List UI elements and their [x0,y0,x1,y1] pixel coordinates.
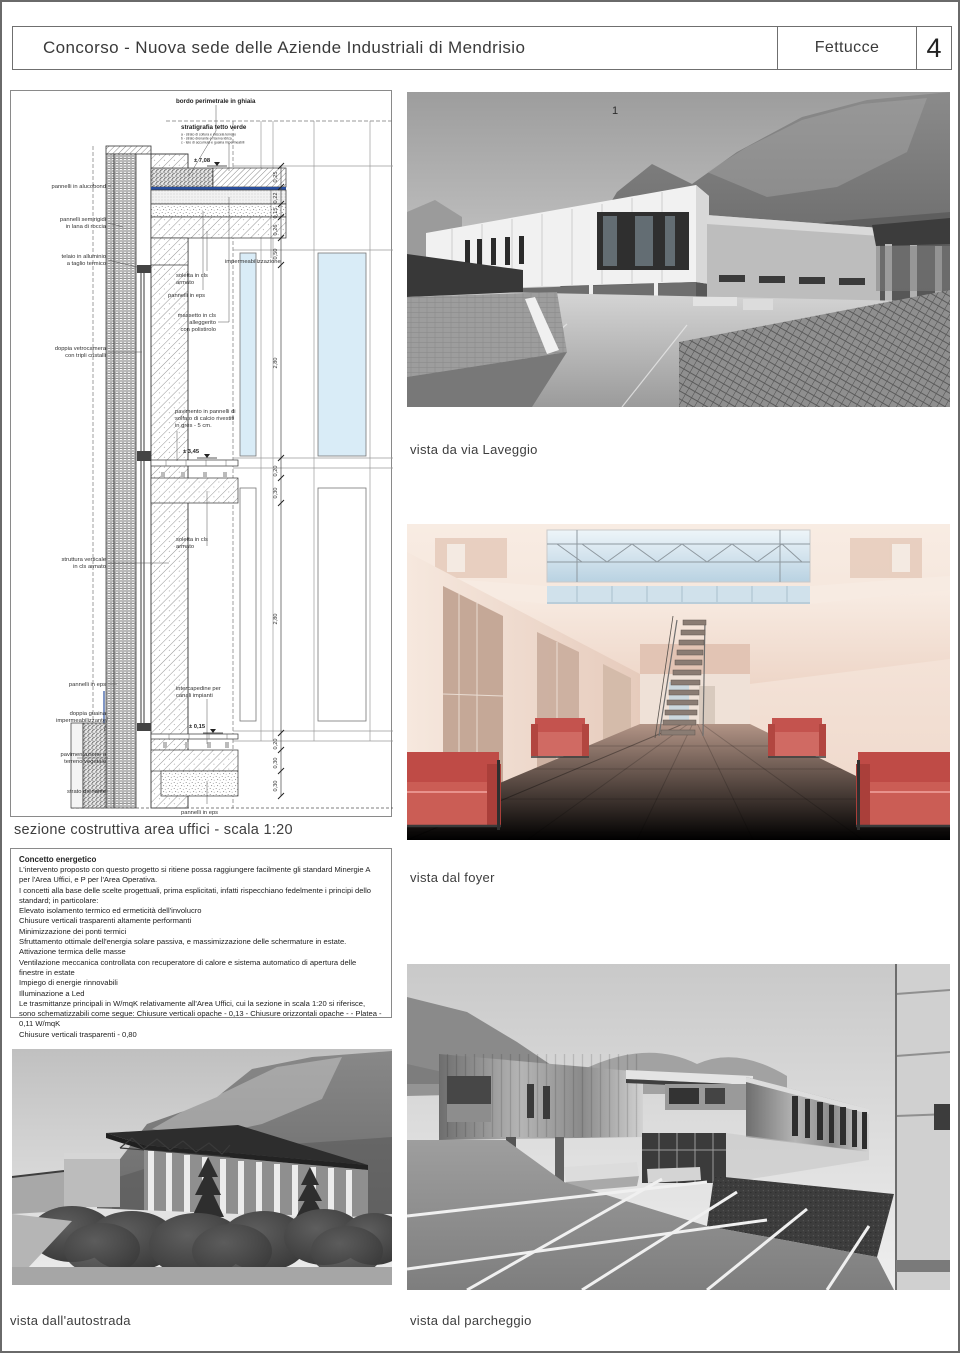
section-drawing-panel: 0,25 0,22 0,15 0,26 0,50 2,80 0,20 0,30 … [10,90,392,817]
label-strat-c: c - telo di accumulo e guaina impermeabi… [181,141,245,145]
header-tag-box: Fettucce [777,26,917,70]
dim-280-upper: 2,80 [273,358,279,369]
label-vetro-1: doppia vetrocamera [55,346,107,352]
label-alucobond: pannelli in alucobond [52,184,106,190]
sofa-front-right [856,752,950,830]
label-massetto-3: con polistirolo [181,327,216,333]
dim-mid-030: 0,30 [273,488,279,499]
sheet-number: 4 [926,33,941,64]
energy-line: Impiego di energie rinnovabili [19,978,383,988]
energy-line: I concetti alla base delle scelte proget… [19,886,383,907]
view-marker-1: 1 [612,105,618,117]
label-massetto-1: massetto in cls [178,313,216,319]
label-semirigidi-2: in lana di roccia [66,224,107,230]
skylight [547,530,810,582]
render-laveggio: 1 [407,92,950,407]
energy-concept-panel: Concetto energetico L'intervento propost… [10,848,392,1018]
caption-autostrada: vista dall'autostrada [10,1313,131,1328]
header-title-box: Concorso - Nuova sede delle Aziende Indu… [12,26,778,70]
drawing-caption: sezione costruttiva area uffici - scala … [14,822,293,838]
dim-280-lower: 2,80 [273,614,279,625]
page-title: Concorso - Nuova sede delle Aziende Indu… [43,38,525,58]
label-pavimento-3: in grès - 5 cm. [175,423,212,429]
label-soletta-b-2: armato [176,544,194,550]
label-soletta-1: soletta in cls [176,273,208,279]
label-struttura-1: struttura verticale [62,557,106,563]
label-eps-left: pannelli in eps [69,682,106,688]
label-guaina-2: impermeabilizzante [56,718,106,724]
competition-board: Concorso - Nuova sede delle Aziende Indu… [0,0,960,1353]
render-foyer [407,524,950,840]
level-markers: ± 7,08 ± 3,45 ± 0,15 [183,158,227,733]
label-eps-roof: pannelli in eps [168,293,205,299]
exterior-ground [71,723,106,808]
caption-foyer: vista dal foyer [410,870,495,885]
energy-line: Chiusure verticali trasparenti altamente… [19,916,383,926]
header-sheet-box: 4 [916,26,952,70]
label-telaio-2: a taglio termico [67,261,106,267]
label-imperm: impermeabilizzazione [225,259,281,265]
foreground-wall [896,964,950,1290]
label-semirigidi-1: pannelli semirigidi [60,217,106,223]
energy-line: Chiusure verticali trasparenti - 0,80 [19,1030,383,1040]
sofa-mid-left [531,718,589,757]
label-drenante: strato drenante [67,789,106,795]
dim-025: 0,25 [273,172,279,183]
render-autostrada [12,1049,392,1285]
energy-line: Illuminazione a Led [19,989,383,999]
label-soletta-2: armato [176,280,194,286]
sofa-mid-right [768,718,826,757]
elevation-windows [240,253,366,721]
level-ground: ± 0,15 [189,724,206,730]
header-bar: Concorso - Nuova sede delle Aziende Indu… [12,26,952,70]
label-pavimento-1: pavimento in pannelli di [175,409,236,415]
dim-bot-030a: 0,30 [273,758,279,769]
label-pavimentazione-1: pavimentazione o [61,752,106,758]
section-drawing: 0,25 0,22 0,15 0,26 0,50 2,80 0,20 0,30 … [11,91,393,818]
level-roof: ± 7,08 [194,158,211,164]
foreground-ground [12,1267,392,1285]
label-vetro-2: con tripli cristalli [65,353,106,359]
energy-title: Concetto energetico [19,855,383,864]
dim-050: 0,50 [273,249,279,260]
energy-line: Ventilazione meccanica controllata con r… [19,958,383,979]
dim-026: 0,26 [273,225,279,236]
project-tag: Fettucce [815,39,880,57]
energy-line: Sfruttamento ottimale dell'energia solar… [19,937,383,947]
energy-line: Minimizzazione dei ponti termici [19,927,383,937]
label-telaio-1: telaio in alluminio [62,254,106,260]
render-parcheggio [407,964,950,1290]
label-eps-bottom: pannelli in eps [181,810,218,816]
label-intercap-1: intercapedine per [176,686,221,692]
label-guaina-1: doppia guaina [70,711,107,717]
sofa-front-left [407,752,501,830]
label-strat-title: stratigrafia tetto verde [181,124,247,131]
roof-assembly [151,168,286,265]
caption-laveggio: vista da via Laveggio [410,442,538,457]
energy-line: Attivazione termica delle masse [19,947,383,957]
label-soletta-b-1: soletta in cls [176,537,208,543]
dim-022: 0,22 [273,193,279,204]
label-intercap-2: canali impianti [176,693,213,699]
energy-line: Le trasmittanze principali in W/mqK rela… [19,999,383,1030]
energy-line: Elevato isolamento termico ed ermeticità… [19,906,383,916]
dim-015: 0,15 [273,208,279,219]
dim-bot-030b: 0,30 [273,781,279,792]
label-pavimentazione-2: terreno vegetale [64,759,106,765]
label-struttura-2: in cls armato [73,564,106,570]
label-pavimento-2: solfato di calcio rivestiti [175,416,234,422]
secondary-building [707,215,880,311]
label-bordo: bordo perimetrale in ghiaia [176,98,256,105]
caption-parcheggio: vista dal parcheggio [410,1313,532,1328]
energy-line: L'intervento proposto con questo progett… [19,865,383,886]
level-floor: ± 3,45 [183,449,200,455]
dim-mid-020: 0,20 [273,466,279,477]
dim-bot-020: 0,20 [273,739,279,750]
label-massetto-2: alleggerito [189,320,216,326]
